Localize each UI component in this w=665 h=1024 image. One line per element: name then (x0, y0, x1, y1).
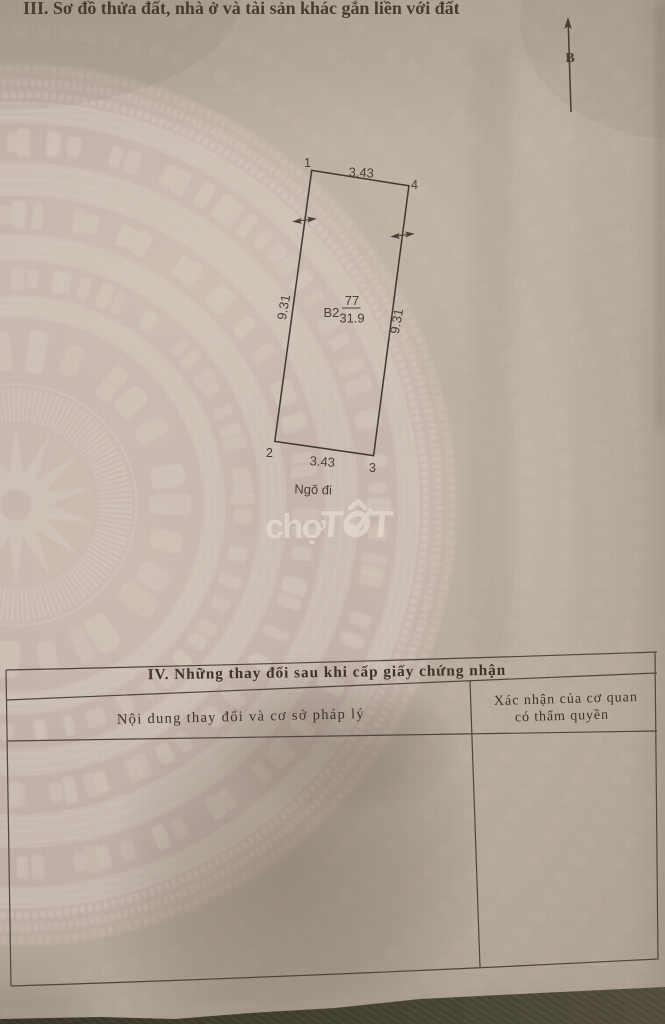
svg-text:T: T (368, 503, 395, 545)
svg-text:3: 3 (369, 461, 376, 475)
svg-text:T: T (318, 503, 345, 545)
svg-text:chợ: chợ (265, 508, 327, 546)
svg-text:B: B (565, 51, 574, 66)
svg-text:B2: B2 (324, 305, 340, 320)
svg-text:3.43: 3.43 (348, 164, 374, 180)
svg-text:III. Sơ đồ thửa đất, nhà ở và: III. Sơ đồ thửa đất, nhà ở và tài sản kh… (23, 0, 460, 18)
svg-text:2: 2 (266, 446, 273, 460)
svg-text:77: 77 (345, 293, 359, 308)
svg-text:4: 4 (411, 178, 418, 192)
svg-text:1: 1 (304, 156, 311, 170)
svg-text:31.9: 31.9 (339, 311, 364, 326)
svg-text:3.43: 3.43 (309, 453, 335, 470)
svg-text:có thẩm quyền: có thẩm quyền (515, 708, 610, 726)
svg-text:Ngõ đi: Ngõ đi (294, 481, 332, 497)
